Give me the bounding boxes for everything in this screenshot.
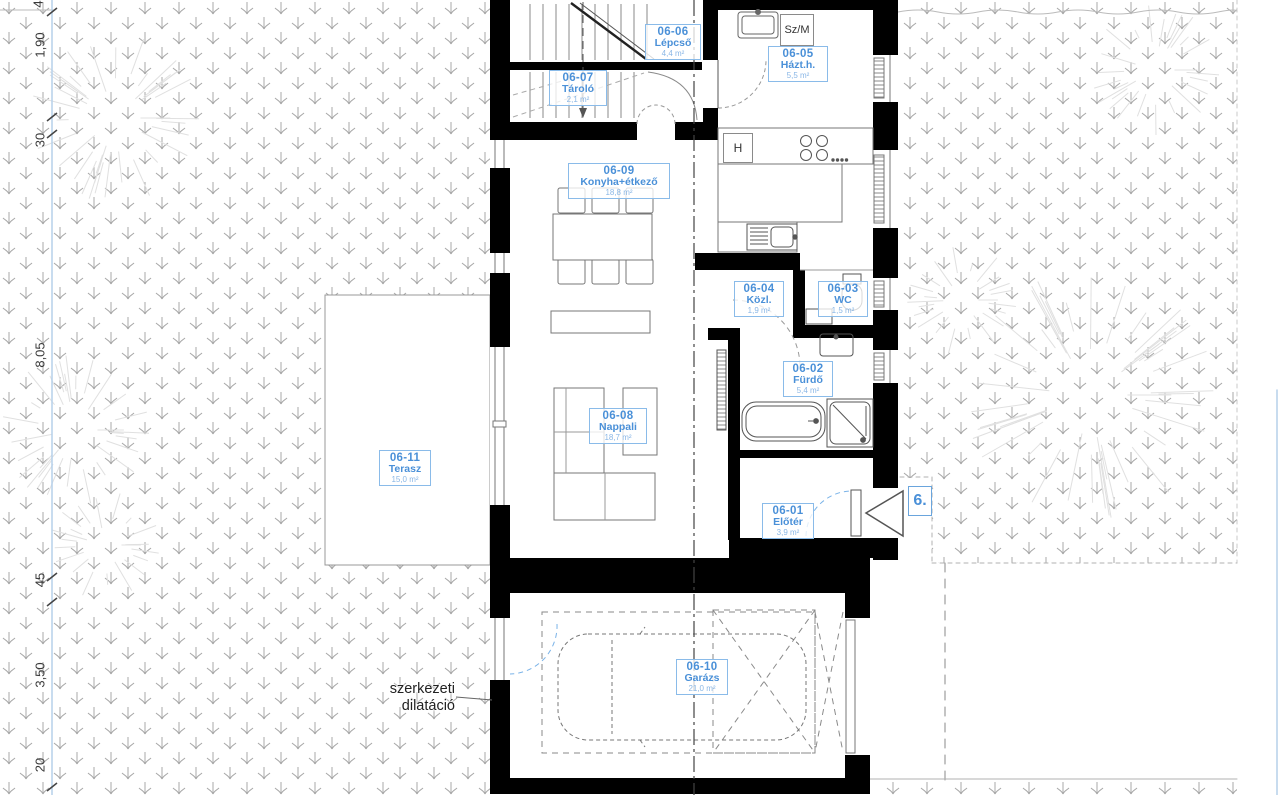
- room-area: 15,0 m²: [382, 476, 428, 485]
- dimension-label: 3,50: [33, 662, 48, 687]
- room-label-06-04: 06-04 Közl. 1,9 m²: [734, 281, 784, 317]
- radiator-symbol: [717, 350, 726, 430]
- room-label-06-08: 06-08 Nappali 18,7 m²: [589, 408, 647, 444]
- room-label-06-07: 06-07 Tároló 2,1 m²: [549, 70, 607, 106]
- room-area: 5,4 m²: [786, 387, 830, 396]
- dimension-label: 8,05: [33, 342, 48, 367]
- dimension-label: 45: [33, 573, 48, 587]
- washer-dryer-box: Sz/M: [780, 14, 814, 46]
- dimension-label: 20: [33, 758, 48, 772]
- room-area: 5,5 m²: [771, 72, 825, 81]
- room-label-06-09: 06-09 Konyha+étkező 18,8 m²: [568, 163, 670, 199]
- sideboard-symbol: [551, 311, 650, 333]
- room-label-06-06: 06-06 Lépcső 4,4 m²: [645, 24, 701, 60]
- dimension-label: 30: [33, 133, 48, 147]
- floor-plan-canvas: 06-06 Lépcső 4,4 m² 06-07 Tároló 2,1 m² …: [0, 0, 1280, 795]
- note-line-1: szerkezeti: [363, 681, 455, 698]
- dimension-label: 4: [31, 0, 46, 7]
- room-label-06-02: 06-02 Fürdő 5,4 m²: [783, 361, 833, 397]
- room-area: 1,5 m²: [821, 307, 865, 316]
- room-label-06-03: 06-03 WC 1,5 m²: [818, 281, 868, 317]
- room-label-06-11: 06-11 Terasz 15,0 m²: [379, 450, 431, 486]
- dining-table-symbol: [553, 214, 652, 260]
- room-label-06-05: 06-05 Házt.h. 5,5 m²: [768, 46, 828, 82]
- fridge-box: H: [723, 133, 753, 163]
- room-area: 3,9 m²: [765, 529, 811, 538]
- structural-dilatation-note: szerkezeti dilatáció: [363, 681, 455, 715]
- note-line-2: dilatáció: [363, 698, 455, 715]
- room-label-06-01: 06-01 Előtér 3,9 m²: [762, 503, 814, 539]
- room-label-06-10: 06-10 Garázs 21,0 m²: [676, 659, 728, 695]
- unit-entry-marker: 6.: [908, 486, 932, 516]
- floor-plan-linework: [0, 0, 1280, 795]
- terrace-slab: [325, 295, 490, 565]
- dining-set: [551, 188, 653, 333]
- room-area: 18,8 m²: [571, 189, 667, 198]
- room-area: 2,1 m²: [552, 96, 604, 105]
- room-area: 21,0 m²: [679, 685, 725, 694]
- room-area: 1,9 m²: [737, 307, 781, 316]
- dimension-label: 1,90: [33, 32, 48, 57]
- room-area: 18,7 m²: [592, 434, 644, 443]
- room-area: 4,4 m²: [648, 50, 698, 59]
